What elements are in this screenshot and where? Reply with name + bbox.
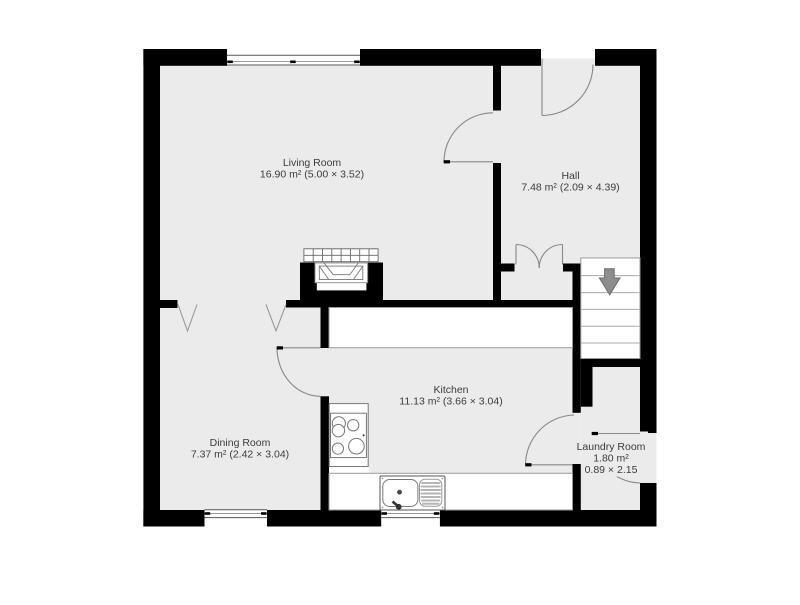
svg-text:Hall: Hall [561, 170, 579, 182]
svg-text:Laundry Room: Laundry Room [577, 441, 646, 453]
svg-text:7.37 m² (2.42 × 3.04): 7.37 m² (2.42 × 3.04) [191, 449, 289, 461]
svg-text:0.89 × 2.15: 0.89 × 2.15 [585, 464, 638, 476]
svg-text:11.13 m² (3.66 × 3.04): 11.13 m² (3.66 × 3.04) [399, 396, 502, 408]
svg-text:Kitchen: Kitchen [433, 384, 468, 396]
svg-text:Living Room: Living Room [283, 157, 342, 169]
svg-text:16.90 m² (5.00 × 3.52): 16.90 m² (5.00 × 3.52) [260, 168, 364, 180]
svg-text:7.48 m² (2.09 × 4.39): 7.48 m² (2.09 × 4.39) [521, 181, 619, 193]
svg-text:Dining Room: Dining Room [210, 437, 271, 449]
svg-text:1.80 m²: 1.80 m² [593, 453, 629, 465]
